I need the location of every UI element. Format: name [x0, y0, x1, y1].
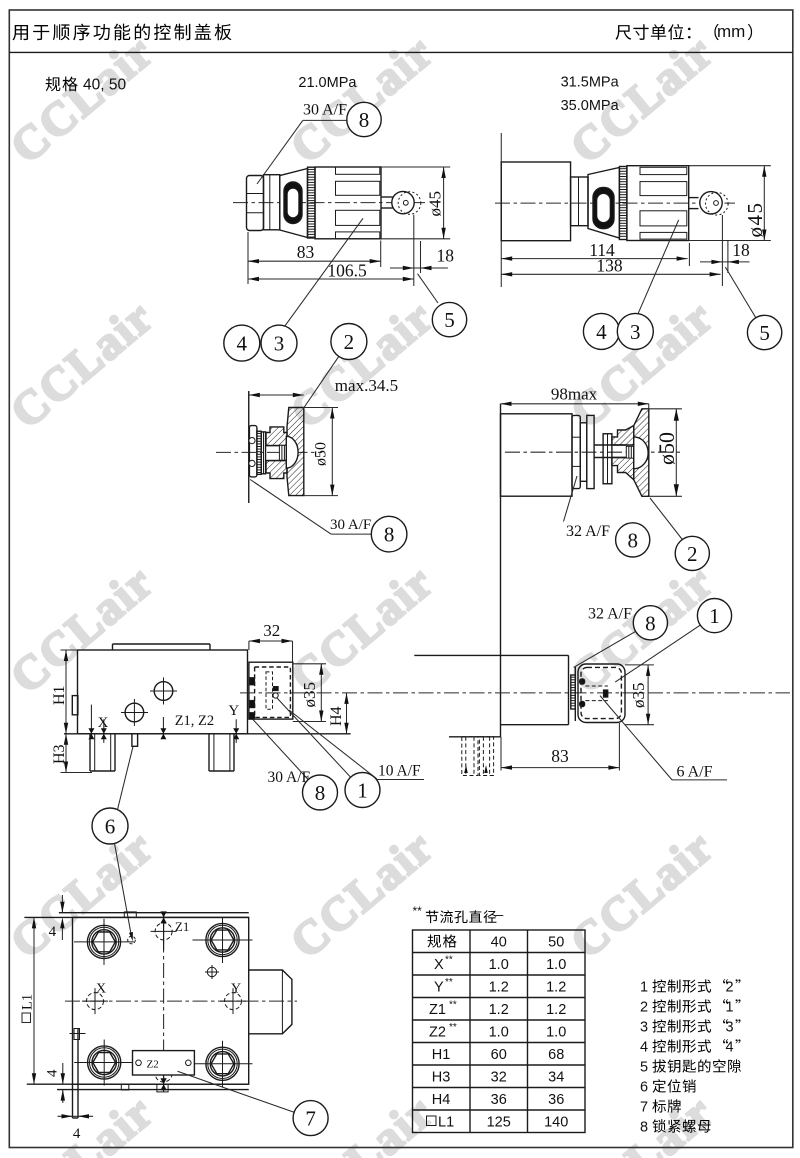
svg-text:Z1, Z2: Z1, Z2 [175, 713, 214, 729]
svg-text:1.0: 1.0 [546, 1025, 566, 1041]
svg-text:4: 4 [73, 1126, 81, 1142]
svg-text:138: 138 [596, 256, 623, 276]
svg-text:CCLair: CCLair [1, 290, 164, 438]
svg-text:CCLair: CCLair [281, 25, 444, 173]
svg-text:L1: L1 [438, 1115, 454, 1131]
svg-text:60: 60 [491, 1047, 507, 1063]
svg-text:2: 2 [726, 980, 734, 996]
svg-text:125: 125 [487, 1115, 511, 1131]
svg-text:83: 83 [551, 746, 569, 766]
svg-text:5: 5 [640, 1060, 648, 1076]
svg-text:Y: Y [231, 982, 241, 997]
svg-text:max.34.5: max.34.5 [335, 376, 398, 395]
svg-text:Z2: Z2 [147, 1059, 159, 1071]
svg-text:31.5MPa: 31.5MPa [561, 75, 620, 91]
svg-text:140: 140 [544, 1115, 568, 1131]
svg-text:7: 7 [640, 1100, 648, 1116]
svg-text:1.0: 1.0 [489, 1025, 509, 1041]
svg-text:4: 4 [45, 1069, 61, 1077]
svg-text:6 A/F: 6 A/F [677, 764, 713, 781]
svg-text:3: 3 [630, 320, 641, 344]
svg-text:H3: H3 [432, 1070, 451, 1086]
svg-text:CCLair: CCLair [1, 820, 164, 968]
svg-text:Z1: Z1 [175, 919, 189, 934]
svg-text:83: 83 [297, 242, 315, 262]
svg-text:Y: Y [228, 703, 239, 719]
svg-text:1.0: 1.0 [546, 957, 566, 973]
svg-text:4: 4 [49, 924, 57, 940]
svg-text:50: 50 [548, 935, 564, 951]
svg-text:CCLair: CCLair [281, 555, 444, 703]
svg-text:68: 68 [548, 1047, 564, 1063]
svg-text:1.2: 1.2 [489, 1002, 509, 1018]
svg-text:3: 3 [274, 332, 285, 356]
svg-text:4: 4 [596, 320, 607, 344]
svg-text:32: 32 [263, 621, 280, 640]
svg-text:2: 2 [640, 1000, 648, 1016]
svg-text:CCLair: CCLair [1, 555, 164, 703]
svg-text:98max: 98max [551, 385, 598, 404]
svg-text:30 A/F: 30 A/F [303, 102, 347, 119]
svg-text:**: ** [413, 904, 423, 918]
svg-text:18: 18 [732, 240, 750, 260]
svg-text:106.5: 106.5 [327, 261, 367, 281]
svg-text:36: 36 [491, 1092, 507, 1108]
svg-text:32 A/F: 32 A/F [588, 606, 632, 623]
svg-text:1.2: 1.2 [546, 980, 566, 996]
svg-text:32: 32 [491, 1070, 507, 1086]
svg-text:ø45: ø45 [743, 202, 767, 238]
svg-text:H3: H3 [51, 744, 68, 764]
svg-text:8: 8 [627, 528, 638, 552]
svg-text:Z2: Z2 [429, 1025, 446, 1041]
svg-text:CCLair: CCLair [1, 25, 164, 173]
svg-text:ø45: ø45 [426, 191, 445, 217]
svg-text:2: 2 [687, 542, 698, 566]
svg-text:H4: H4 [432, 1092, 451, 1108]
svg-text:8: 8 [359, 108, 370, 132]
svg-text:1: 1 [357, 779, 368, 803]
svg-text:Y: Y [434, 980, 444, 996]
svg-text:ø35: ø35 [629, 683, 648, 709]
svg-text:5: 5 [444, 308, 455, 332]
svg-text:Z1: Z1 [429, 1002, 446, 1018]
svg-text:6: 6 [105, 815, 116, 839]
svg-text:**: ** [445, 955, 453, 966]
svg-text:4: 4 [237, 332, 248, 356]
svg-text:1.2: 1.2 [489, 980, 509, 996]
svg-text:H1: H1 [432, 1047, 451, 1063]
svg-text:H4: H4 [328, 706, 345, 726]
svg-text:CCLair: CCLair [281, 290, 444, 438]
svg-text:8: 8 [384, 523, 395, 547]
svg-text:34: 34 [548, 1070, 564, 1086]
svg-text:30 A/F: 30 A/F [268, 769, 311, 786]
svg-text:ø35: ø35 [300, 682, 319, 708]
svg-text:40: 40 [491, 935, 507, 951]
svg-text:1: 1 [726, 1000, 734, 1016]
svg-text:X: X [98, 715, 109, 731]
svg-text:30 A/F: 30 A/F [330, 517, 371, 533]
svg-text:4: 4 [726, 1040, 734, 1056]
svg-text:H1: H1 [51, 685, 68, 705]
svg-text:3: 3 [726, 1020, 734, 1036]
svg-text:L1: L1 [20, 994, 36, 1010]
svg-text:35.0MPa: 35.0MPa [561, 98, 620, 114]
svg-text:40, 50: 40, 50 [83, 77, 126, 94]
svg-text:21.0MPa: 21.0MPa [298, 75, 357, 91]
svg-text:CCLair: CCLair [281, 820, 444, 968]
svg-text:ø50: ø50 [313, 442, 330, 466]
svg-text:18: 18 [437, 246, 455, 266]
svg-text:10 A/F: 10 A/F [378, 763, 421, 780]
svg-text:–: – [496, 906, 504, 922]
svg-text:X: X [434, 957, 444, 973]
svg-text:4: 4 [640, 1040, 648, 1056]
svg-text:**: ** [449, 1022, 457, 1033]
svg-text:8: 8 [645, 611, 656, 635]
svg-text:mm: mm [717, 22, 745, 41]
svg-text:1: 1 [640, 980, 648, 996]
svg-text:ø50: ø50 [654, 432, 679, 465]
svg-text:36: 36 [548, 1092, 564, 1108]
svg-text:**: ** [449, 1000, 457, 1011]
svg-text:8: 8 [640, 1120, 648, 1136]
svg-text:7: 7 [305, 1107, 316, 1131]
svg-text:32 A/F: 32 A/F [566, 523, 610, 540]
svg-text:X: X [96, 982, 106, 997]
svg-text:2: 2 [344, 330, 355, 354]
svg-text:8: 8 [315, 781, 326, 805]
svg-text:1.2: 1.2 [546, 1002, 566, 1018]
svg-text:1: 1 [709, 604, 720, 628]
svg-text:6: 6 [640, 1080, 648, 1096]
svg-text:3: 3 [640, 1020, 648, 1036]
svg-text:**: ** [445, 977, 453, 988]
svg-text:1.0: 1.0 [489, 957, 509, 973]
svg-text:5: 5 [759, 321, 770, 345]
